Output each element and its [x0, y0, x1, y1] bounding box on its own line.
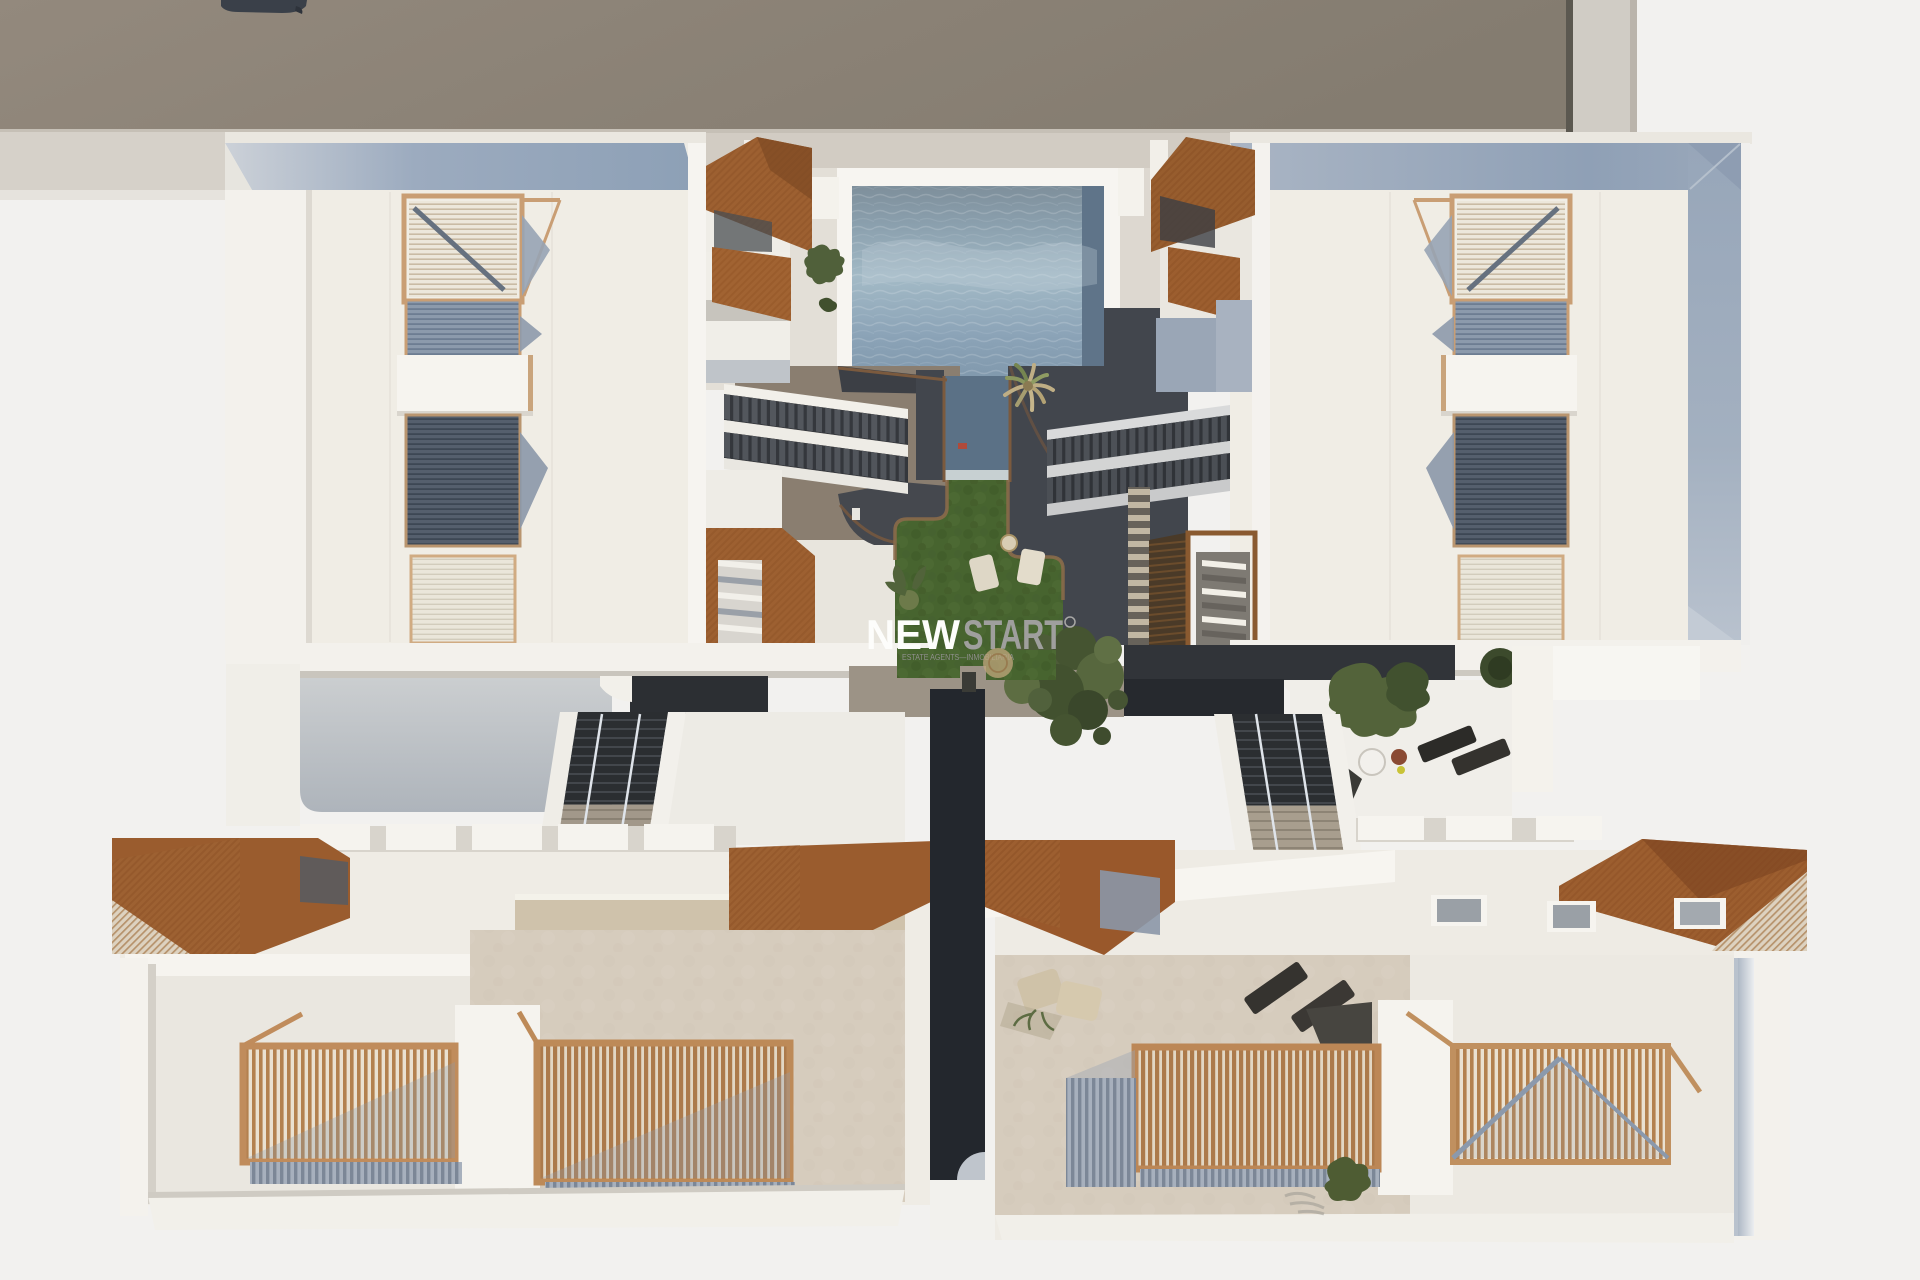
svg-text:NEW: NEW [866, 611, 960, 658]
svg-text:START: START [963, 611, 1063, 658]
